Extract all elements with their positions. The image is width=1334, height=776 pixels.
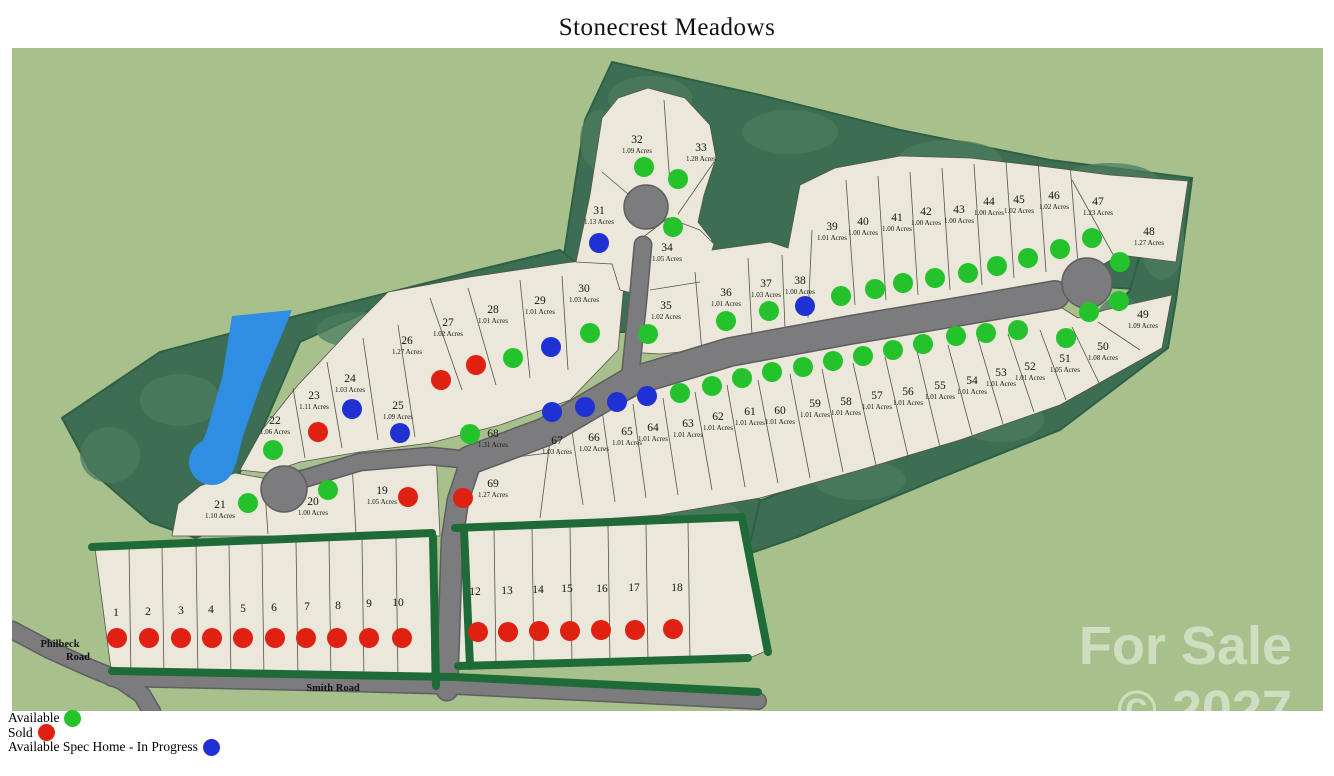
lot-status-dot bbox=[1082, 228, 1102, 248]
lot-number: 64 bbox=[647, 422, 659, 434]
lot-acreage: 1.05 Acres bbox=[652, 255, 682, 263]
legend-label-sold: Sold bbox=[8, 726, 33, 741]
lot-acreage: 1.01 Acres bbox=[673, 431, 703, 439]
lot-acreage: 1.27 Acres bbox=[478, 491, 508, 499]
lot-number: 51 bbox=[1059, 353, 1071, 365]
lot-acreage: 1.01 Acres bbox=[986, 380, 1016, 388]
lot-status-dot bbox=[575, 397, 595, 417]
lot-status-dot bbox=[1056, 328, 1076, 348]
plat-map: Philbeck Road Smith Road 123456789101213… bbox=[0, 0, 1334, 776]
lot-status-dot bbox=[883, 340, 903, 360]
lot-status-dot bbox=[958, 263, 978, 283]
legend-row-spec: Available Spec Home - In Progress bbox=[8, 740, 220, 755]
lot-acreage: 1.11 Acres bbox=[299, 403, 329, 411]
lot-number: 14 bbox=[532, 584, 544, 596]
lot-status-dot bbox=[580, 323, 600, 343]
lot-number: 40 bbox=[857, 216, 869, 228]
lot-number: 25 bbox=[392, 400, 404, 412]
lot-status-dot bbox=[265, 628, 285, 648]
lot-number: 27 bbox=[442, 317, 454, 329]
lot-acreage: 1.00 Acres bbox=[944, 217, 974, 225]
lot-status-dot bbox=[468, 622, 488, 642]
lot-number: 10 bbox=[392, 597, 404, 609]
lot-number: 32 bbox=[631, 134, 643, 146]
lot-status-dot bbox=[318, 480, 338, 500]
lot-status-dot bbox=[607, 392, 627, 412]
lot-number: 31 bbox=[593, 205, 605, 217]
lot-acreage: 1.01 Acres bbox=[711, 300, 741, 308]
for-sale-watermark: For Sale bbox=[1079, 616, 1292, 676]
lot-number: 59 bbox=[809, 398, 821, 410]
lot-status-dot bbox=[663, 619, 683, 639]
lot-status-dot bbox=[560, 621, 580, 641]
lot-acreage: 1.00 Acres bbox=[298, 509, 328, 517]
lot-number: 12 bbox=[469, 586, 481, 598]
lot-number: 58 bbox=[840, 396, 852, 408]
lot-status-dot bbox=[139, 628, 159, 648]
lot-number: 6 bbox=[271, 602, 277, 614]
lot-acreage: 1.13 Acres bbox=[584, 218, 614, 226]
lot-status-dot bbox=[308, 422, 328, 442]
lot-status-dot bbox=[263, 440, 283, 460]
lot-acreage: 1.03 Acres bbox=[751, 291, 781, 299]
lot-acreage: 1.06 Acres bbox=[260, 428, 290, 436]
lot-status-dot bbox=[976, 323, 996, 343]
lot-number: 29 bbox=[534, 295, 546, 307]
watermark-partial-line: © 2027 bbox=[1117, 680, 1292, 740]
lot-number: 7 bbox=[304, 601, 310, 613]
lot-status-dot bbox=[663, 217, 683, 237]
lot-acreage: 1.01 Acres bbox=[862, 403, 892, 411]
east-cul-de-sac bbox=[1062, 258, 1112, 308]
philbeck-road-label-line2: Road bbox=[66, 652, 90, 663]
lot-acreage: 1.01 Acres bbox=[893, 399, 923, 407]
lot-number: 49 bbox=[1137, 309, 1149, 321]
lot-number: 15 bbox=[561, 583, 573, 595]
lot-status-dot bbox=[638, 324, 658, 344]
lot-number: 21 bbox=[214, 499, 226, 511]
lot-number: 45 bbox=[1013, 194, 1025, 206]
lot-number: 52 bbox=[1024, 361, 1036, 373]
lot-status-dot bbox=[529, 621, 549, 641]
lot-number: 23 bbox=[308, 390, 320, 402]
lot-number: 24 bbox=[344, 373, 356, 385]
lot-acreage: 1.27 Acres bbox=[1134, 239, 1164, 247]
lot-acreage: 1.00 Acres bbox=[848, 229, 878, 237]
lot-status-dot bbox=[1008, 320, 1028, 340]
lot-acreage: 1.00 Acres bbox=[785, 288, 815, 296]
lot-acreage: 1.01 Acres bbox=[817, 234, 847, 242]
lot-number: 65 bbox=[621, 426, 633, 438]
lot-status-dot bbox=[716, 311, 736, 331]
lot-number: 42 bbox=[920, 206, 932, 218]
lot-acreage: 1.03 Acres bbox=[335, 386, 365, 394]
lot-number: 55 bbox=[934, 380, 946, 392]
lot-acreage: 1.01 Acres bbox=[800, 411, 830, 419]
philbeck-road-label-line1: Philbeck bbox=[40, 639, 79, 650]
lot-status-dot bbox=[466, 355, 486, 375]
lot-number: 43 bbox=[953, 204, 965, 216]
lot-number: 47 bbox=[1092, 196, 1104, 208]
north-cul-de-sac bbox=[624, 185, 668, 229]
lot-acreage: 1.09 Acres bbox=[383, 413, 413, 421]
lot-acreage: 1.02 Acres bbox=[1004, 207, 1034, 215]
lot-number: 66 bbox=[588, 432, 600, 444]
lot-status-dot bbox=[1018, 248, 1038, 268]
lot-acreage: 1.02 Acres bbox=[651, 313, 681, 321]
lot-status-dot bbox=[296, 628, 316, 648]
lot-status-dot bbox=[1050, 239, 1070, 259]
lot-number: 18 bbox=[671, 582, 683, 594]
lot-acreage: 1.01 Acres bbox=[765, 418, 795, 426]
lot-number: 46 bbox=[1048, 190, 1060, 202]
lot-status-dot bbox=[865, 279, 885, 299]
lot-acreage: 1.31 Acres bbox=[478, 441, 508, 449]
lot-status-dot bbox=[634, 157, 654, 177]
lot-number: 28 bbox=[487, 304, 499, 316]
lot-status-dot bbox=[171, 628, 191, 648]
lot-status-dot bbox=[327, 628, 347, 648]
lot-number: 9 bbox=[366, 598, 372, 610]
lot-acreage: 1.01 Acres bbox=[957, 388, 987, 396]
lot-status-dot bbox=[759, 301, 779, 321]
legend-label-available: Available bbox=[8, 711, 59, 726]
lot-number: 34 bbox=[661, 242, 673, 254]
lot-status-dot bbox=[925, 268, 945, 288]
lot-acreage: 1.01 Acres bbox=[478, 317, 508, 325]
lot-status-dot bbox=[202, 628, 222, 648]
lot-status-dot bbox=[398, 487, 418, 507]
lot-status-dot bbox=[893, 273, 913, 293]
west-cul-de-sac bbox=[261, 466, 307, 512]
lot-acreage: 1.02 Acres bbox=[1039, 203, 1069, 211]
lot-status-dot bbox=[453, 488, 473, 508]
lot-number: 13 bbox=[501, 585, 513, 597]
legend-row-sold: Sold bbox=[8, 726, 220, 741]
lot-status-dot bbox=[946, 326, 966, 346]
lot-number: 67 bbox=[551, 435, 563, 447]
lot-number: 22 bbox=[269, 415, 281, 427]
lot-acreage: 1.03 Acres bbox=[569, 296, 599, 304]
lot-acreage: 1.01 Acres bbox=[831, 409, 861, 417]
lot-status-dot bbox=[359, 628, 379, 648]
lot-acreage: 1.09 Acres bbox=[1128, 322, 1158, 330]
lot-number: 54 bbox=[966, 375, 978, 387]
lot-acreage: 1.02 Acres bbox=[433, 330, 463, 338]
lot-acreage: 1.01 Acres bbox=[703, 424, 733, 432]
legend-row-available: Available bbox=[8, 711, 220, 726]
lot-status-dot bbox=[392, 628, 412, 648]
lot-status-dot bbox=[233, 628, 253, 648]
lot-status-dot bbox=[342, 399, 362, 419]
available-dot-icon bbox=[64, 710, 81, 727]
lot-status-dot bbox=[670, 383, 690, 403]
lot-acreage: 1.05 Acres bbox=[367, 498, 397, 506]
lot-acreage: 1.03 Acres bbox=[542, 448, 572, 456]
lot-number: 8 bbox=[335, 600, 341, 612]
smith-road-label: Smith Road bbox=[306, 683, 360, 694]
lot-acreage: 1.09 Acres bbox=[622, 147, 652, 155]
lot-acreage: 1.05 Acres bbox=[1050, 366, 1080, 374]
lot-status-dot bbox=[1109, 291, 1129, 311]
lot-number: 41 bbox=[891, 212, 903, 224]
lot-number: 2 bbox=[145, 606, 151, 618]
lot-acreage: 1.01 Acres bbox=[735, 419, 765, 427]
lot-status-dot bbox=[591, 620, 611, 640]
lot-status-dot bbox=[823, 351, 843, 371]
lot-number: 4 bbox=[208, 604, 214, 616]
lot-number: 50 bbox=[1097, 341, 1109, 353]
lot-status-dot bbox=[793, 357, 813, 377]
legend: Available Sold Available Spec Home - In … bbox=[8, 711, 220, 755]
lot-status-dot bbox=[1079, 302, 1099, 322]
spec-dot-icon bbox=[203, 739, 220, 756]
lot-acreage: 1.01 Acres bbox=[612, 439, 642, 447]
lot-number: 44 bbox=[983, 196, 995, 208]
lot-status-dot bbox=[668, 169, 688, 189]
lot-number: 68 bbox=[487, 428, 499, 440]
lot-status-dot bbox=[460, 424, 480, 444]
lot-number: 1 bbox=[113, 607, 119, 619]
lot-status-dot bbox=[431, 370, 451, 390]
lot-number: 39 bbox=[826, 221, 838, 233]
lot-number: 17 bbox=[628, 582, 640, 594]
lot-number: 60 bbox=[774, 405, 786, 417]
lot-status-dot bbox=[987, 256, 1007, 276]
lot-acreage: 1.23 Acres bbox=[1083, 209, 1113, 217]
lot-number: 33 bbox=[695, 142, 707, 154]
lot-acreage: 1.00 Acres bbox=[882, 225, 912, 233]
lot-status-dot bbox=[762, 362, 782, 382]
lot-number: 63 bbox=[682, 418, 694, 430]
lot-status-dot bbox=[702, 376, 722, 396]
lot-status-dot bbox=[913, 334, 933, 354]
lot-status-dot bbox=[107, 628, 127, 648]
lot-status-dot bbox=[541, 337, 561, 357]
lot-acreage: 1.10 Acres bbox=[205, 512, 235, 520]
lot-status-dot bbox=[795, 296, 815, 316]
lot-acreage: 1.08 Acres bbox=[1088, 354, 1118, 362]
lot-number: 36 bbox=[720, 287, 732, 299]
lot-number: 53 bbox=[995, 367, 1007, 379]
lot-status-dot bbox=[1110, 252, 1130, 272]
lot-acreage: 1.00 Acres bbox=[911, 219, 941, 227]
lot-number: 5 bbox=[240, 603, 246, 615]
lot-number: 38 bbox=[794, 275, 806, 287]
lot-status-dot bbox=[732, 368, 752, 388]
lot-status-dot bbox=[853, 346, 873, 366]
lot-status-dot bbox=[503, 348, 523, 368]
lot-number: 3 bbox=[178, 605, 184, 617]
lot-acreage: 1.01 Acres bbox=[1015, 374, 1045, 382]
lot-status-dot bbox=[625, 620, 645, 640]
lot-number: 26 bbox=[401, 335, 413, 347]
lot-status-dot bbox=[498, 622, 518, 642]
lot-number: 56 bbox=[902, 386, 914, 398]
lot-acreage: 1.01 Acres bbox=[525, 308, 555, 316]
lot-number: 62 bbox=[712, 411, 724, 423]
lot-status-dot bbox=[542, 402, 562, 422]
lot-number: 61 bbox=[744, 406, 756, 418]
legend-label-spec: Available Spec Home - In Progress bbox=[8, 740, 198, 755]
lot-acreage: 1.02 Acres bbox=[579, 445, 609, 453]
lot-acreage: 1.27 Acres bbox=[392, 348, 422, 356]
lot-status-dot bbox=[637, 386, 657, 406]
lot-status-dot bbox=[390, 423, 410, 443]
lot-number: 20 bbox=[307, 496, 319, 508]
lot-number: 37 bbox=[760, 278, 772, 290]
lot-status-dot bbox=[831, 286, 851, 306]
plat-map-page: Stonecrest Meadows bbox=[0, 0, 1334, 776]
lot-number: 19 bbox=[376, 485, 388, 497]
lot-number: 57 bbox=[871, 390, 883, 402]
lot-acreage: 1.01 Acres bbox=[925, 393, 955, 401]
lot-acreage: 1.01 Acres bbox=[638, 435, 668, 443]
lot-acreage: 1.28 Acres bbox=[686, 155, 716, 163]
lot-number: 69 bbox=[487, 478, 499, 490]
lot-status-dot bbox=[589, 233, 609, 253]
lot-number: 48 bbox=[1143, 226, 1155, 238]
lot-number: 35 bbox=[660, 300, 672, 312]
lot-number: 30 bbox=[578, 283, 590, 295]
lot-number: 16 bbox=[596, 583, 608, 595]
lot-status-dot bbox=[238, 493, 258, 513]
lot-acreage: 1.00 Acres bbox=[974, 209, 1004, 217]
